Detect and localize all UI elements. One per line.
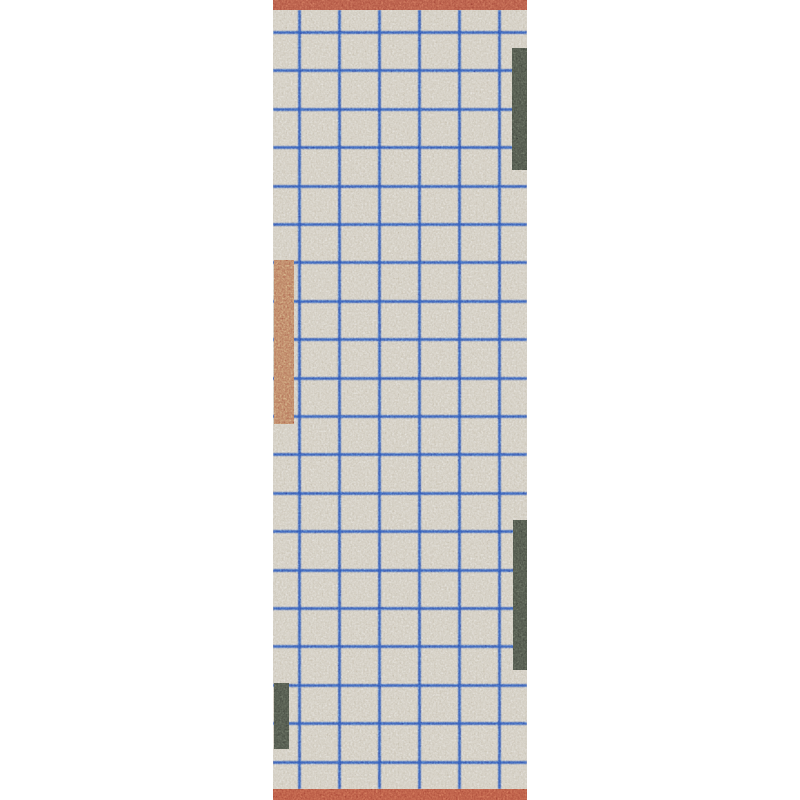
horizontal-grid-line xyxy=(273,453,527,456)
horizontal-grid-line xyxy=(273,722,527,725)
horizontal-grid-line xyxy=(273,31,527,34)
horizontal-grid-line xyxy=(273,69,527,72)
vertical-grid-line xyxy=(498,10,501,789)
horizontal-grid-line xyxy=(273,761,527,764)
rug-product-photo xyxy=(0,0,800,800)
vertical-grid-line xyxy=(458,10,461,789)
horizontal-grid-line xyxy=(273,377,527,380)
horizontal-grid-line xyxy=(273,261,527,264)
rug-top-edge-stripe xyxy=(273,0,527,10)
horizontal-grid-line xyxy=(273,108,527,111)
vertical-grid-line xyxy=(378,10,381,789)
horizontal-grid-line xyxy=(273,530,527,533)
accent-block-bottom-left xyxy=(274,683,289,749)
vertical-grid-line xyxy=(338,10,341,789)
horizontal-grid-line xyxy=(273,146,527,149)
vertical-grid-line xyxy=(418,10,421,789)
rug-bottom-edge-stripe xyxy=(273,789,527,800)
horizontal-grid-line xyxy=(273,684,527,687)
accent-block-bottom-right xyxy=(513,520,527,670)
horizontal-grid-line xyxy=(273,569,527,572)
rug-runner xyxy=(273,0,527,800)
horizontal-grid-line xyxy=(273,492,527,495)
horizontal-grid-line xyxy=(273,415,527,418)
horizontal-grid-line xyxy=(273,223,527,226)
horizontal-grid-line xyxy=(273,185,527,188)
vertical-grid-line xyxy=(298,10,301,789)
accent-block-middle-left xyxy=(274,260,294,424)
accent-block-top-right xyxy=(512,48,527,170)
horizontal-grid-line xyxy=(273,338,527,341)
horizontal-grid-line xyxy=(273,607,527,610)
horizontal-grid-line xyxy=(273,300,527,303)
rug-grid-pattern xyxy=(273,10,527,789)
horizontal-grid-line xyxy=(273,645,527,648)
